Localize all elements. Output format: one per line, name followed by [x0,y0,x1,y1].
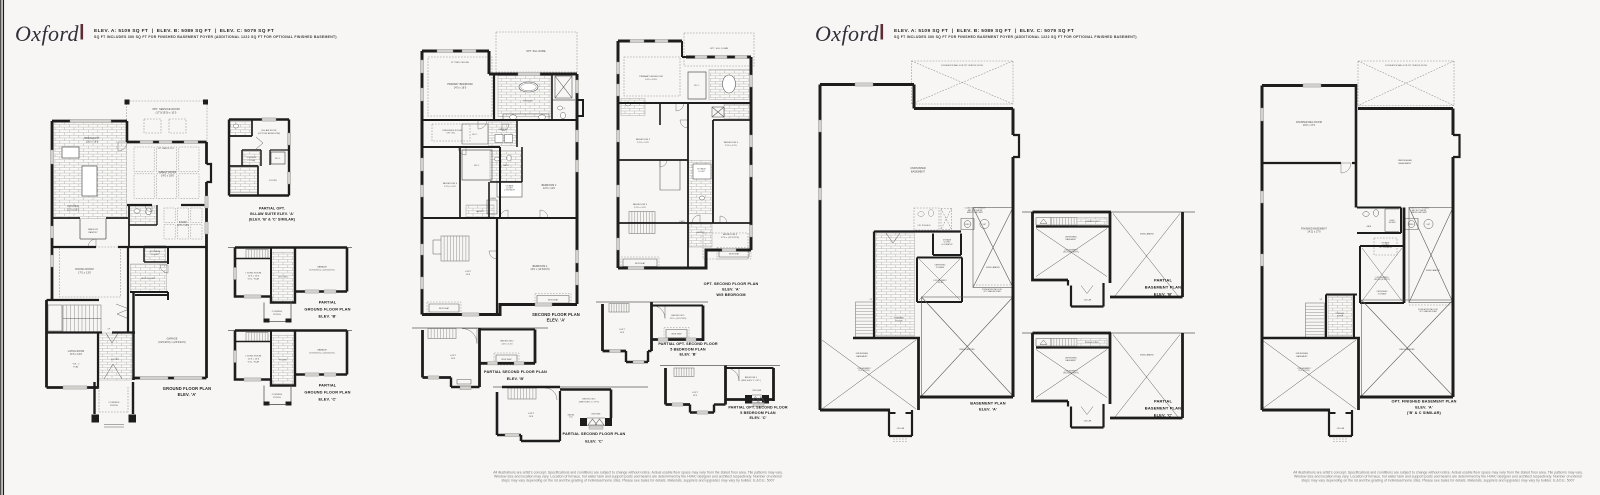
svg-text:FOYER: FOYER [279,277,287,279]
svg-text:WDW SEAT: WDW SEAT [729,252,740,255]
svg-text:UNEXCAVATED: UNEXCAVATED [959,348,975,351]
svg-text:OPT. SERVICE ROOM(17'0/19'0) x: OPT. SERVICE ROOM(17'0/19'0) x 10'0 [152,108,179,114]
svg-text:UNFINISHEDBASEMENT: UNFINISHEDBASEMENT [1398,160,1413,165]
svg-text:BEDROOM 512'0 x (11'0/13'0): BEDROOM 512'0 x (11'0/13'0) [721,234,739,239]
svg-text:ENSUITE: ENSUITE [523,101,533,103]
svg-text:WDW SEAT: WDW SEAT [635,262,646,265]
svg-text:LIVING ROOM11'6 x 13'0VOL. FLA: LIVING ROOM11'6 x 13'0VOL. FLAT [246,273,262,281]
svg-text:ELEV. A: 5109 SQ FT | ELEV.: ELEV. A: 5109 SQ FT | ELEV. B: 5089 SQ F… [94,28,274,34]
svg-text:UP: UP [108,329,110,331]
svg-text:UNFINISHEDBASEMENT: UNFINISHEDBASEMENT [910,167,926,173]
svg-text:STORAGECLOSET: STORAGECLOSET [150,250,161,256]
svg-text:ELEV. A: 5109 SQ FT | ELEV.: ELEV. A: 5109 SQ FT | ELEV. B: 5089 SQ F… [894,28,1074,34]
svg-text:DINING ROOM17'0 x 13'0: DINING ROOM17'0 x 13'0 [75,268,93,274]
svg-text:HWT: HWT [983,224,987,226]
svg-text:CELLAR: CELLAR [1084,420,1092,423]
svg-text:SQ FT INCLUDES 300 SQ FT FOR F: SQ FT INCLUDES 300 SQ FT FOR FINISHED BA… [894,35,1137,39]
svg-text:STORAGECLOSET: STORAGECLOSET [247,156,258,162]
svg-text:WDW SEAT: WDW SEAT [671,333,682,336]
svg-text:HWT: HWT [1427,224,1431,226]
svg-text:UNEXCAVATED: UNEXCAVATED [1140,354,1155,357]
svg-text:12' TRAY CEILING: 12' TRAY CEILING [451,61,470,64]
svg-text:WDW SEAT: WDW SEAT [501,358,512,361]
svg-text:BREAKFAST10'0 x 16'0: BREAKFAST10'0 x 16'0 [85,137,100,143]
svg-text:LIVING ROOM11'6 x 13'0: LIVING ROOM11'6 x 13'0 [68,351,84,356]
svg-text:FOYER: FOYER [111,359,119,361]
svg-text:W.I.C.: W.I.C. [474,165,480,167]
svg-text:UNFINISHEDBASEMENT: UNFINISHEDBASEMENT [856,353,869,358]
svg-text:All illustrations are artist's: All illustrations are artist's concept. … [493,471,783,483]
svg-text:LIVING ROOM11'6 x 13'0VOL. FLA: LIVING ROOM11'6 x 13'0VOL. FLAT [246,356,262,364]
svg-text:FOYER: FOYER [269,180,277,182]
svg-text:UNEXCAVATED: UNEXCAVATED [1140,233,1155,236]
svg-text:UNFINISHEDBASEMENT: UNFINISHEDBASEMENT [1065,358,1078,363]
svg-text:W.I.C.: W.I.C. [275,158,281,160]
svg-text:BEDROOM 312'0 x 11'0: BEDROOM 312'0 x 11'0 [633,204,648,209]
svg-text:FINISHED FOYER: FINISHED FOYER [1085,221,1098,223]
svg-text:WDW SEAT: WDW SEAT [548,298,559,301]
svg-text:W.I.C.: W.I.C. [694,85,700,87]
svg-text:UP: UP [870,299,872,301]
svg-text:UNFINISHEDBASEMENT: UNFINISHEDBASEMENT [1065,237,1078,242]
svg-text:3 PC ROUGH-IN: 3 PC ROUGH-IN [918,225,931,227]
svg-text:MUD ROOM: MUD ROOM [141,278,154,280]
svg-text:OPT. SILL: OPT. SILL [446,133,455,135]
svg-text:GREAT ROOM14'0 x 18'0: GREAT ROOM14'0 x 18'0 [159,171,177,177]
svg-text:FOUNDATION WALL FOR OPT. SERVI: FOUNDATION WALL FOR OPT. SERVICE ROOM [941,64,983,67]
svg-text:FOUNDATION WALL FOR OPT. SERVI: FOUNDATION WALL FOR OPT. SERVICE ROOM [1385,64,1427,67]
svg-text:OPT. SILL DOME: OPT. SILL DOME [710,48,729,50]
svg-text:FINISHED FOYER: FINISHED FOYER [1085,342,1098,344]
svg-text:OPT. SILL DOME: OPT. SILL DOME [526,51,546,53]
svg-text:FURN.: FURN. [965,224,970,226]
svg-text:CELLAR: CELLAR [1084,299,1092,302]
svg-text:BEDROOM 212'0 x 12'0: BEDROOM 212'0 x 12'0 [500,341,514,346]
svg-text:KITCHEN10'0 x 16'0: KITCHEN10'0 x 16'0 [67,205,80,211]
svg-text:BEDROOM 212'0 x 12'0: BEDROOM 212'0 x 12'0 [542,185,557,190]
svg-text:W.I.C.: W.I.C. [472,134,478,136]
svg-text:UNEXCAVATED: UNEXCAVATED [986,266,1001,269]
svg-text:BEDROOM 312'0 x 11'0: BEDROOM 312'0 x 11'0 [443,183,458,188]
svg-text:UNEXCAVATED: UNEXCAVATED [1399,348,1415,351]
svg-text:BEDROOM 512'0 x (11'0/13'0): BEDROOM 512'0 x (11'0/13'0) [670,315,687,320]
svg-text:Oxford: Oxford [815,21,880,46]
svg-text:SQ FT INCLUDES 300 SQ FT FOR F: SQ FT INCLUDES 300 SQ FT FOR FINISHED BA… [94,35,337,39]
svg-text:Oxford: Oxford [15,21,80,46]
svg-text:FOYER: FOYER [279,360,287,362]
svg-text:BEDROOM 212'0 x 11'0: BEDROOM 212'0 x 11'0 [636,139,651,144]
svg-text:BEDROOM 414'0 x (14'6/16'6): BEDROOM 414'0 x (14'6/16'6) [530,266,549,271]
svg-text:UNFINISHEDBASEMENT: UNFINISHEDBASEMENT [1296,353,1309,358]
svg-text:WDW SEAT: WDW SEAT [439,307,450,310]
svg-text:CELLAR: CELLAR [1337,427,1345,430]
svg-text:CELLAR: CELLAR [897,427,905,430]
svg-text:BATH: BATH [503,164,509,167]
svg-text:UNEXCAVATED: UNEXCAVATED [1426,269,1441,272]
svg-text:FURN.: FURN. [1409,224,1414,226]
svg-text:UP: UP [1320,299,1322,301]
svg-text:LAUNDRY: LAUNDRY [498,128,508,131]
svg-text:All illustrations are artist's: All illustrations are artist's concept. … [1293,471,1583,483]
svg-text:BEDROOM 412'0 x 12'0: BEDROOM 412'0 x 12'0 [724,142,739,147]
